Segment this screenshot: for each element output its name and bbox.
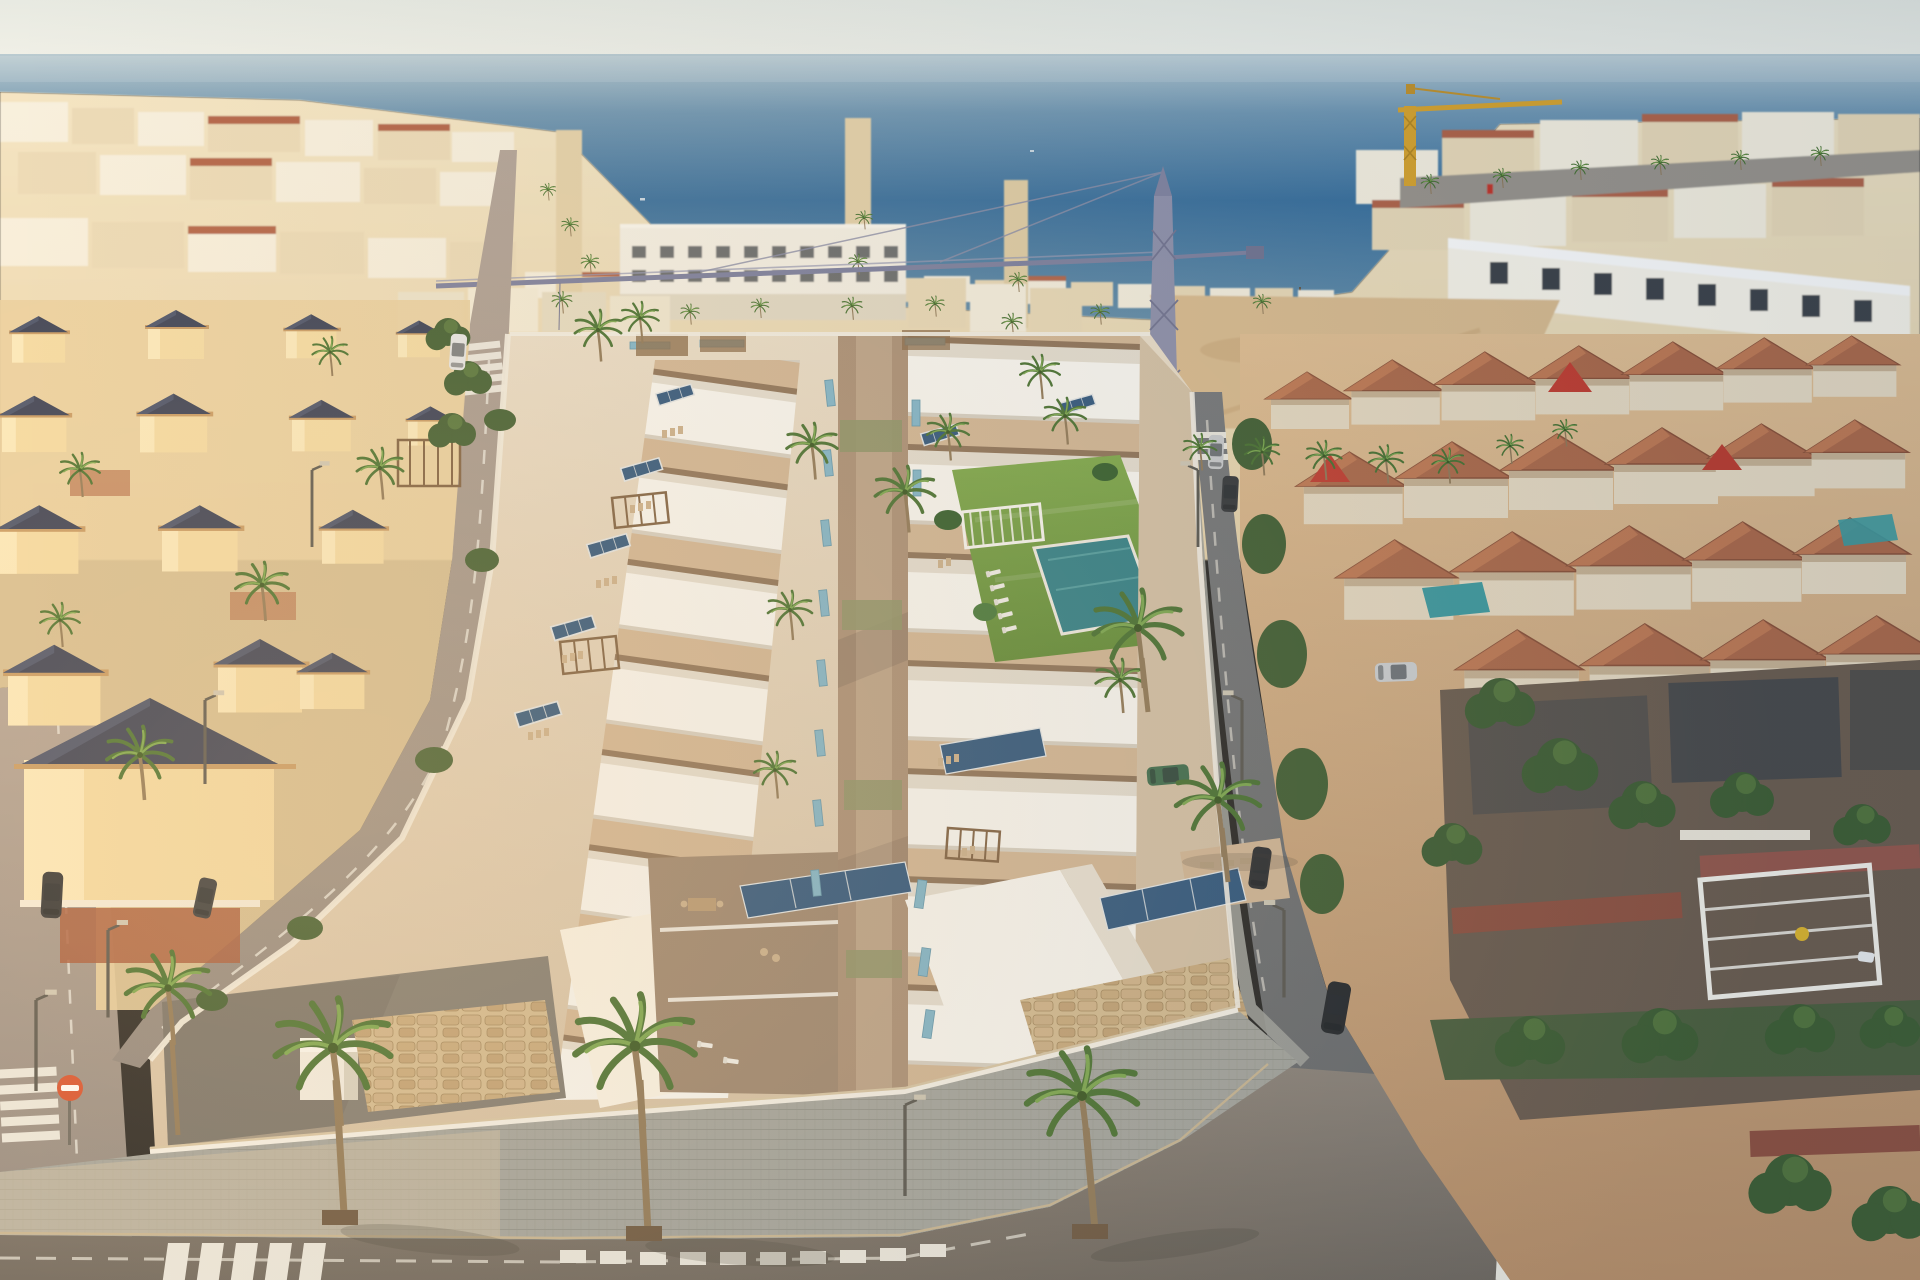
aerial-render: Aerial golden-hour render of a new devel… xyxy=(0,0,1920,1280)
cool-shadow-overlay xyxy=(0,0,1920,1280)
